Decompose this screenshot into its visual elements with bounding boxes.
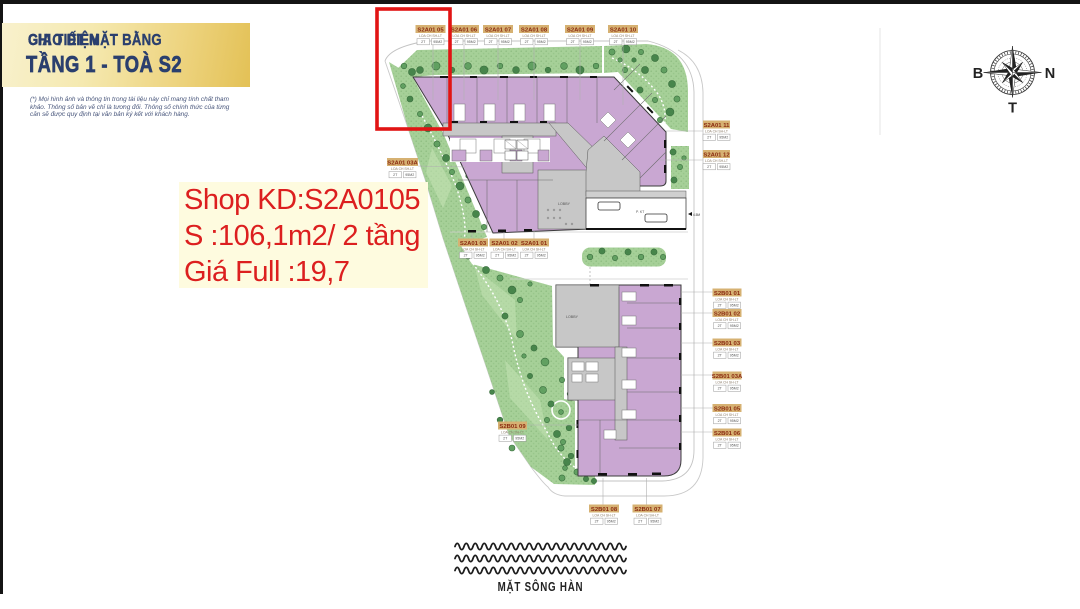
svg-text:95M2: 95M2 — [467, 40, 476, 44]
svg-text:LOA CH SH-LT: LOA CH SH-LT — [716, 413, 739, 417]
svg-text:LOA CH SH-LT: LOA CH SH-LT — [705, 130, 728, 134]
svg-text:S2B01 03: S2B01 03 — [714, 341, 741, 347]
svg-text:LOA CH SH-LT: LOA CH SH-LT — [716, 348, 739, 352]
svg-text:95M2: 95M2 — [537, 254, 546, 258]
svg-text:95M2: 95M2 — [515, 437, 524, 441]
svg-text:95M2: 95M2 — [730, 444, 739, 448]
svg-text:95M2: 95M2 — [730, 324, 739, 328]
svg-text:LOA CH SH-LT: LOA CH SH-LT — [462, 248, 485, 252]
svg-text:S2B01 05: S2B01 05 — [714, 406, 741, 412]
svg-text:N: N — [1045, 66, 1055, 82]
svg-text:95M2: 95M2 — [507, 254, 516, 258]
svg-text:95M2: 95M2 — [719, 136, 728, 140]
svg-text:LOA CH SH-LT: LOA CH SH-LT — [523, 248, 546, 252]
svg-text:S2A01 08: S2A01 08 — [521, 27, 548, 33]
svg-text:S2B01 06: S2B01 06 — [714, 431, 741, 437]
svg-text:95M2: 95M2 — [583, 40, 592, 44]
svg-text:95M2: 95M2 — [730, 354, 739, 358]
svg-text:S2B01 01: S2B01 01 — [714, 291, 741, 297]
svg-text:95M2: 95M2 — [730, 419, 739, 423]
svg-text:LOBBY: LOBBY — [566, 315, 579, 319]
svg-text:95M2: 95M2 — [607, 520, 616, 524]
svg-text:4.5M: 4.5M — [693, 213, 700, 217]
svg-text:95M2: 95M2 — [476, 254, 485, 258]
svg-text:LOA CH SH-LT: LOA CH SH-LT — [501, 431, 524, 435]
svg-text:LOA CH SH-LT: LOA CH SH-LT — [705, 159, 728, 163]
svg-text:S2A01 03: S2A01 03 — [460, 241, 487, 247]
svg-text:LOA CH SH-LT: LOA CH SH-LT — [716, 438, 739, 442]
svg-text:S2B01 03A: S2B01 03A — [712, 374, 743, 380]
svg-text:LOA CH SH-LT: LOA CH SH-LT — [391, 167, 414, 171]
svg-text:LOA CH SH-LT: LOA CH SH-LT — [487, 34, 510, 38]
svg-text:LOA CH SH-LT: LOA CH SH-LT — [593, 514, 616, 518]
svg-text:S2A01 03A: S2A01 03A — [387, 160, 418, 166]
svg-text:LOA CH SH-LT: LOA CH SH-LT — [636, 514, 659, 518]
svg-text:B: B — [973, 66, 983, 82]
svg-text:LOA CH SH-LT: LOA CH SH-LT — [419, 34, 442, 38]
svg-text:95M2: 95M2 — [719, 165, 728, 169]
svg-text:LOA CH SH-LT: LOA CH SH-LT — [493, 248, 516, 252]
svg-text:LOA CH SH-LT: LOA CH SH-LT — [523, 34, 546, 38]
svg-text:95M2: 95M2 — [730, 304, 739, 308]
svg-text:S2A01 02: S2A01 02 — [491, 241, 518, 247]
svg-text:S2A01 11: S2A01 11 — [704, 123, 731, 129]
svg-text:95M2: 95M2 — [501, 40, 510, 44]
svg-text:S2A01 01: S2A01 01 — [521, 241, 548, 247]
svg-text:S2B01 07: S2B01 07 — [634, 507, 661, 513]
svg-text:S2A01 06: S2A01 06 — [451, 27, 478, 33]
svg-text:T: T — [1008, 101, 1017, 117]
svg-text:S2B01 08: S2B01 08 — [591, 507, 618, 513]
svg-text:S2A01 05: S2A01 05 — [417, 27, 444, 33]
svg-text:LOA CH SH-LT: LOA CH SH-LT — [716, 298, 739, 302]
svg-text:S2A01 12: S2A01 12 — [703, 152, 730, 158]
svg-text:S2B01 02: S2B01 02 — [714, 311, 741, 317]
svg-text:LOA CH SH-LT: LOA CH SH-LT — [716, 318, 739, 322]
svg-text:LOA CH SH-LT: LOA CH SH-LT — [453, 34, 476, 38]
svg-text:95M2: 95M2 — [730, 387, 739, 391]
svg-text:LOA CH SH-LT: LOA CH SH-LT — [716, 381, 739, 385]
svg-text:S2A01 09: S2A01 09 — [567, 27, 594, 33]
svg-text:S2A01 10: S2A01 10 — [610, 27, 637, 33]
svg-text:95M2: 95M2 — [626, 40, 635, 44]
svg-text:P. KT: P. KT — [636, 210, 645, 214]
svg-text:S2A01 07: S2A01 07 — [485, 27, 512, 33]
svg-text:95M2: 95M2 — [433, 40, 442, 44]
svg-text:95M2: 95M2 — [537, 40, 546, 44]
svg-text:LOA CH SH-LT: LOA CH SH-LT — [612, 34, 635, 38]
svg-text:LOBBY: LOBBY — [558, 202, 571, 206]
svg-text:95M2: 95M2 — [405, 173, 414, 177]
svg-text:95M2: 95M2 — [650, 520, 659, 524]
svg-text:S2B01 09: S2B01 09 — [499, 424, 526, 430]
svg-text:LOA CH SH-LT: LOA CH SH-LT — [569, 34, 592, 38]
